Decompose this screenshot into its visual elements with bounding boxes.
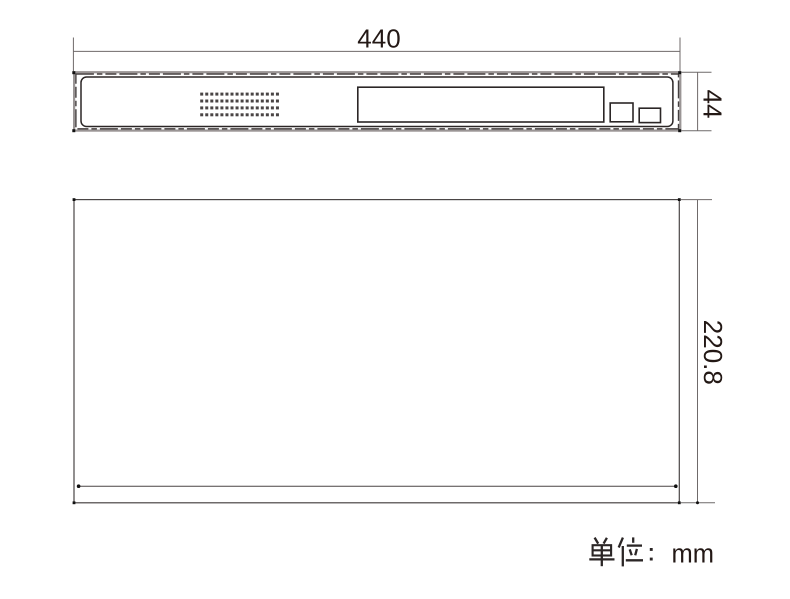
svg-text:440: 440 [357,24,400,54]
svg-text:mm: mm [672,540,714,568]
svg-text:220.8: 220.8 [698,320,728,385]
svg-text:44: 44 [697,90,727,119]
